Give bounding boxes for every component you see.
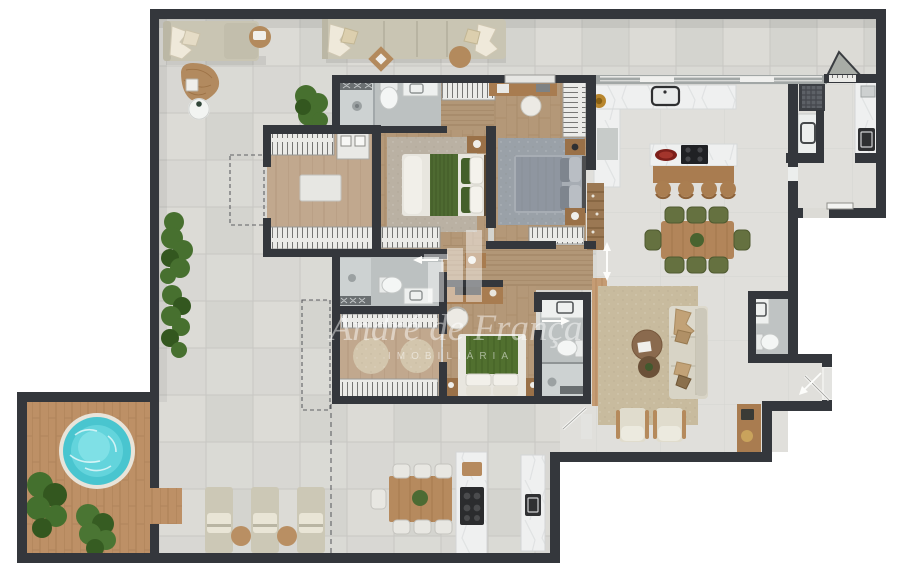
svg-text:André de França: André de França — [327, 308, 583, 349]
svg-text:IMOBILIÁRIA: IMOBILIÁRIA — [388, 349, 514, 362]
